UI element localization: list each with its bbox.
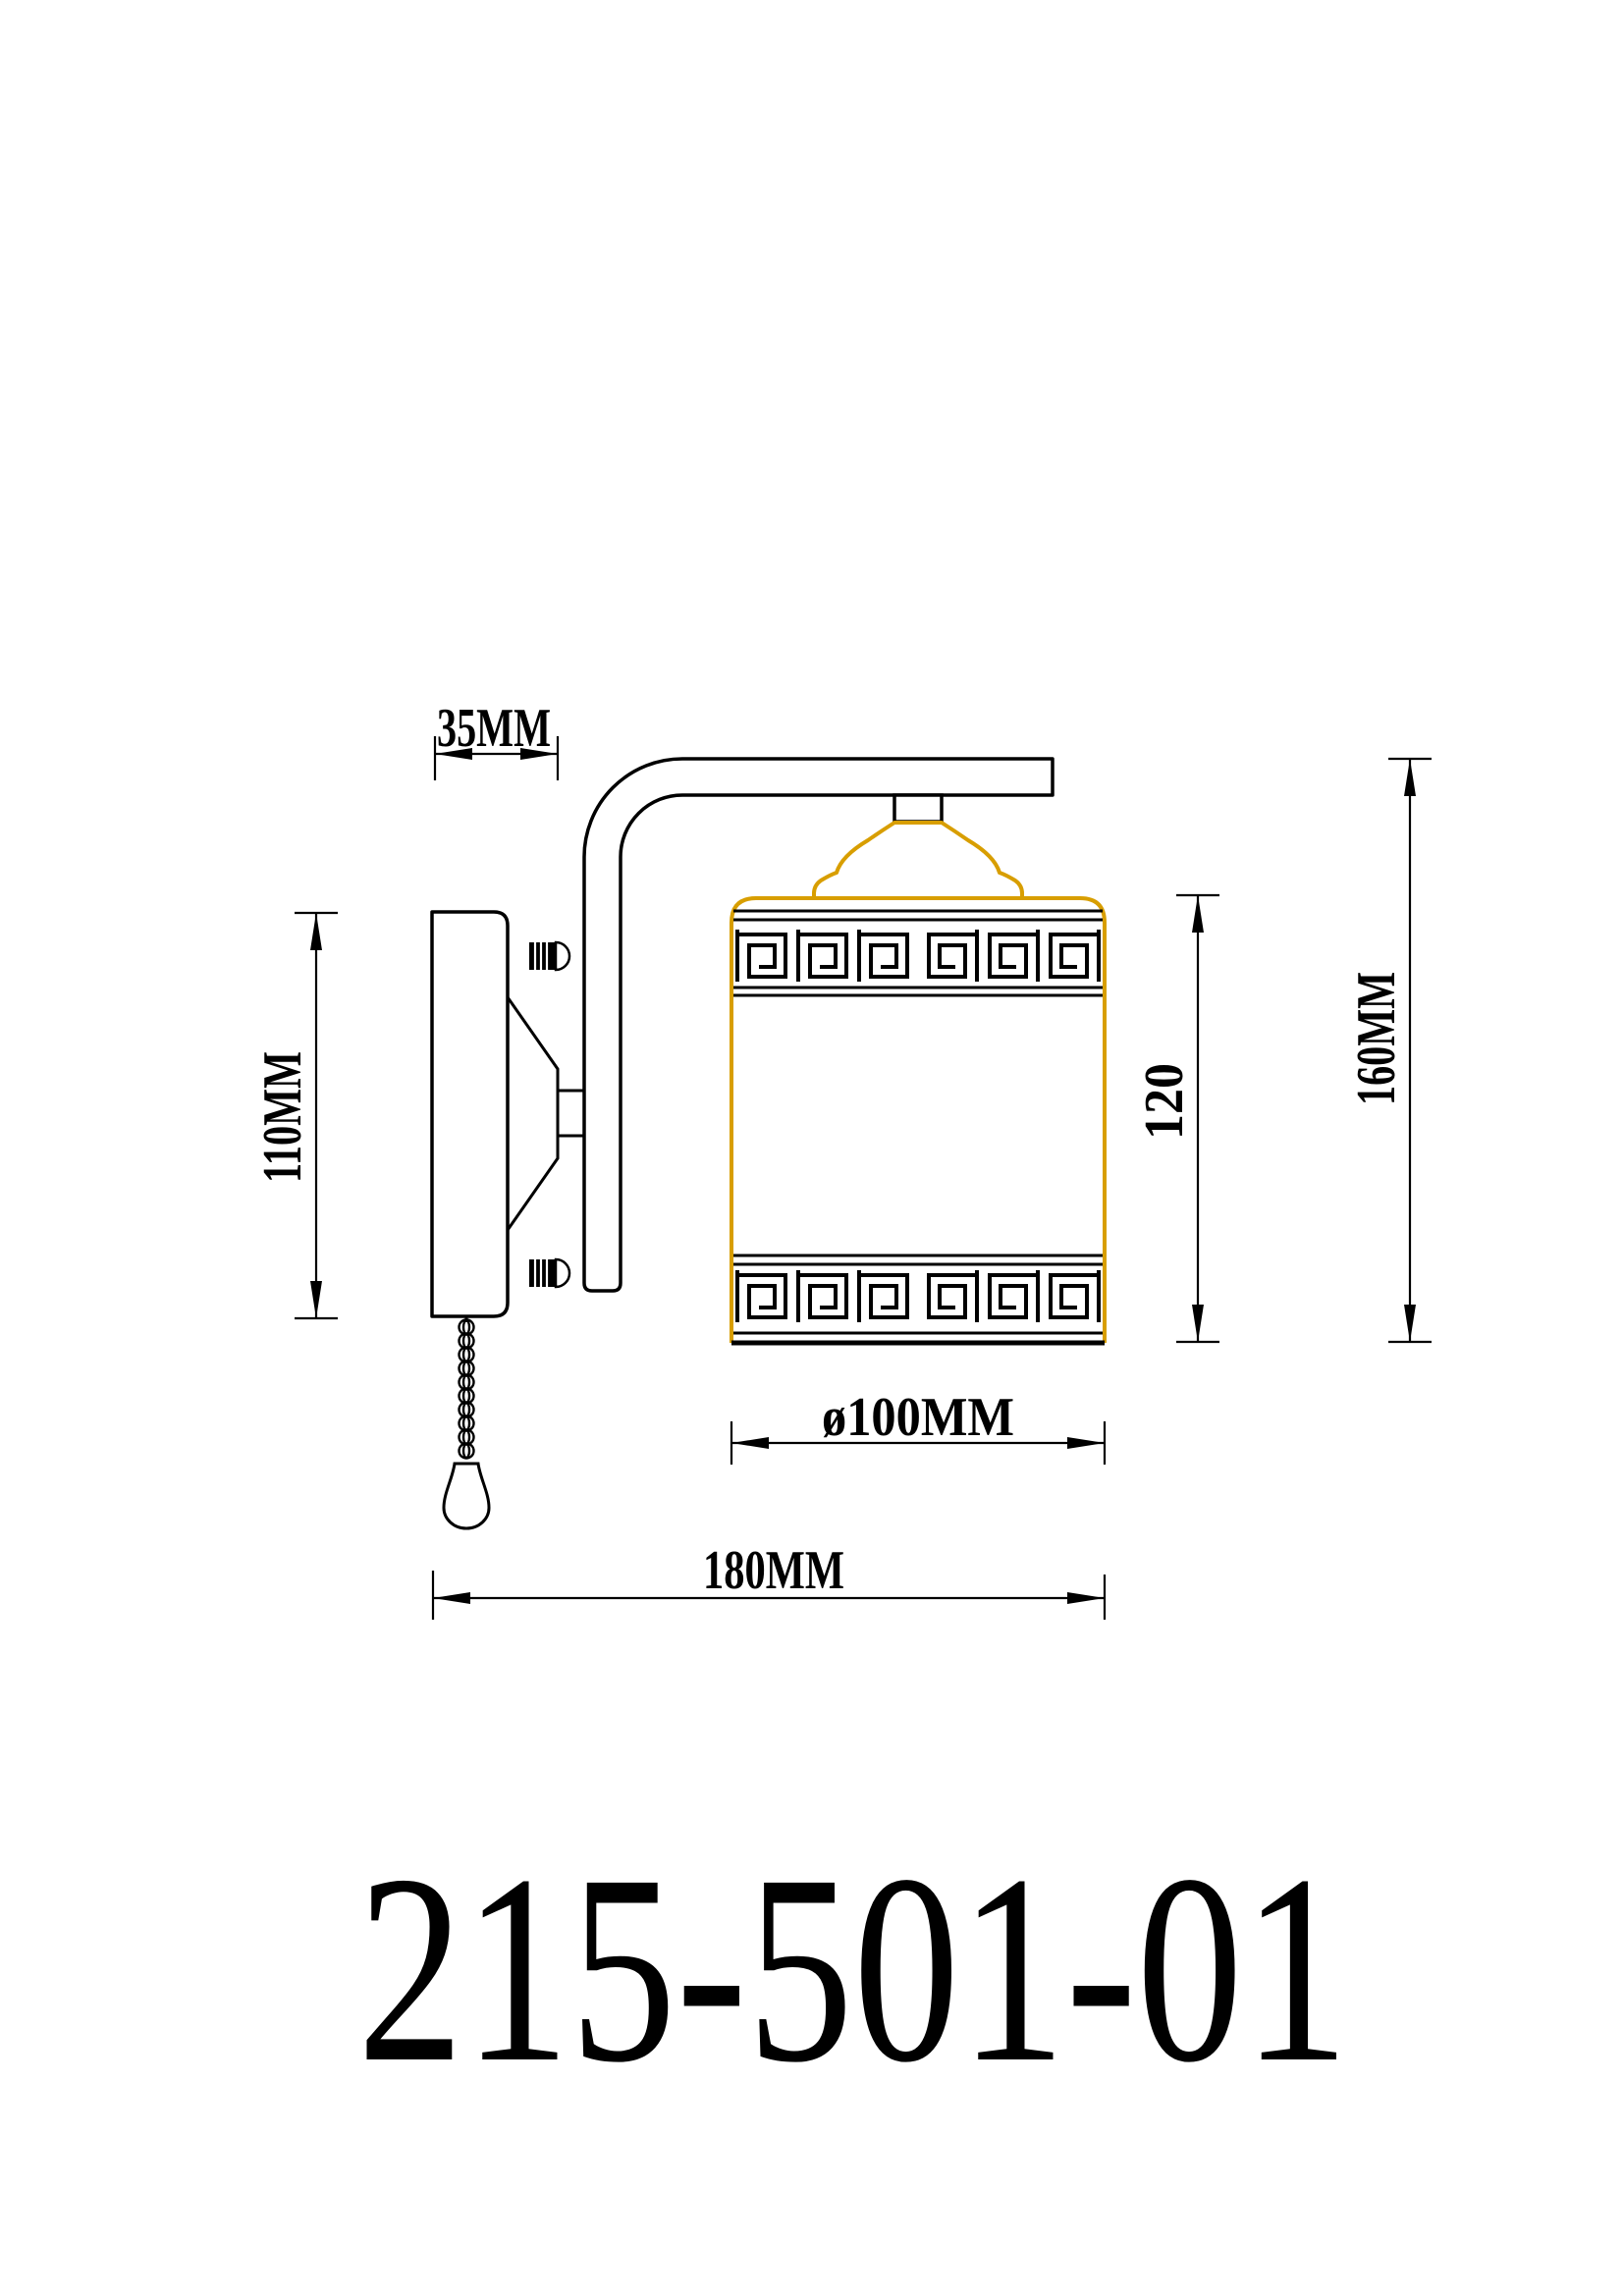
product-code: 215-501-01	[357, 1820, 1349, 2118]
pull-chain-teardrop	[444, 1464, 489, 1528]
mounting-screw-bottom	[529, 1259, 569, 1287]
pull-chain	[444, 1316, 489, 1528]
dimension-fixture-width: 180MM	[433, 1540, 1105, 1620]
mounting-screw-top	[529, 942, 569, 970]
wall-backplate	[432, 912, 508, 1316]
wall-sconce-diagram: 35MM 110MM 120 160MM ø100MM	[0, 0, 1623, 2296]
dim-label-100mm: ø100MM	[822, 1387, 1014, 1448]
dimension-backplate-height: 110MM	[252, 913, 338, 1318]
bracket-cone	[508, 997, 584, 1230]
dimension-arm-offset: 35MM	[435, 698, 558, 780]
dim-label-160mm: 160MM	[1346, 972, 1407, 1105]
dim-label-120: 120	[1134, 1063, 1195, 1140]
shade-cap-dome	[814, 823, 1022, 903]
dim-label-110mm: 110MM	[252, 1051, 313, 1183]
dimension-shade-height: 120	[1134, 895, 1219, 1342]
glass-shade	[731, 898, 1105, 1343]
dimension-fixture-height: 160MM	[1346, 759, 1432, 1342]
dim-label-180mm: 180MM	[703, 1540, 844, 1601]
dimension-shade-diameter: ø100MM	[731, 1387, 1105, 1465]
dim-label-35mm: 35MM	[437, 698, 551, 759]
technical-drawing-page: 35MM 110MM 120 160MM ø100MM	[0, 0, 1623, 2296]
shade-stem	[894, 795, 942, 822]
